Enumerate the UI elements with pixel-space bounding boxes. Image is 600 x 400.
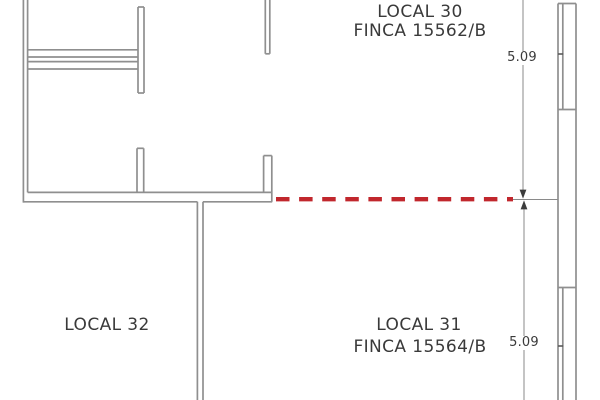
floor-plan: LOCAL 30 FINCA 15562/B LOCAL 31 FINCA 15… <box>0 0 600 400</box>
label-local-32: LOCAL 32 <box>64 316 149 335</box>
dimension-value-top: 5.09 <box>504 51 540 65</box>
label-finca-local-30: FINCA 15562/B <box>353 22 486 41</box>
label-local-31: LOCAL 31 <box>376 316 461 335</box>
arrow-up-icon <box>521 200 528 209</box>
arrow-down-icon <box>520 190 527 199</box>
label-finca-local-31: FINCA 15564/B <box>353 338 486 357</box>
dimension-value-bottom: 5.09 <box>506 336 542 350</box>
label-local-30: LOCAL 30 <box>377 3 462 22</box>
